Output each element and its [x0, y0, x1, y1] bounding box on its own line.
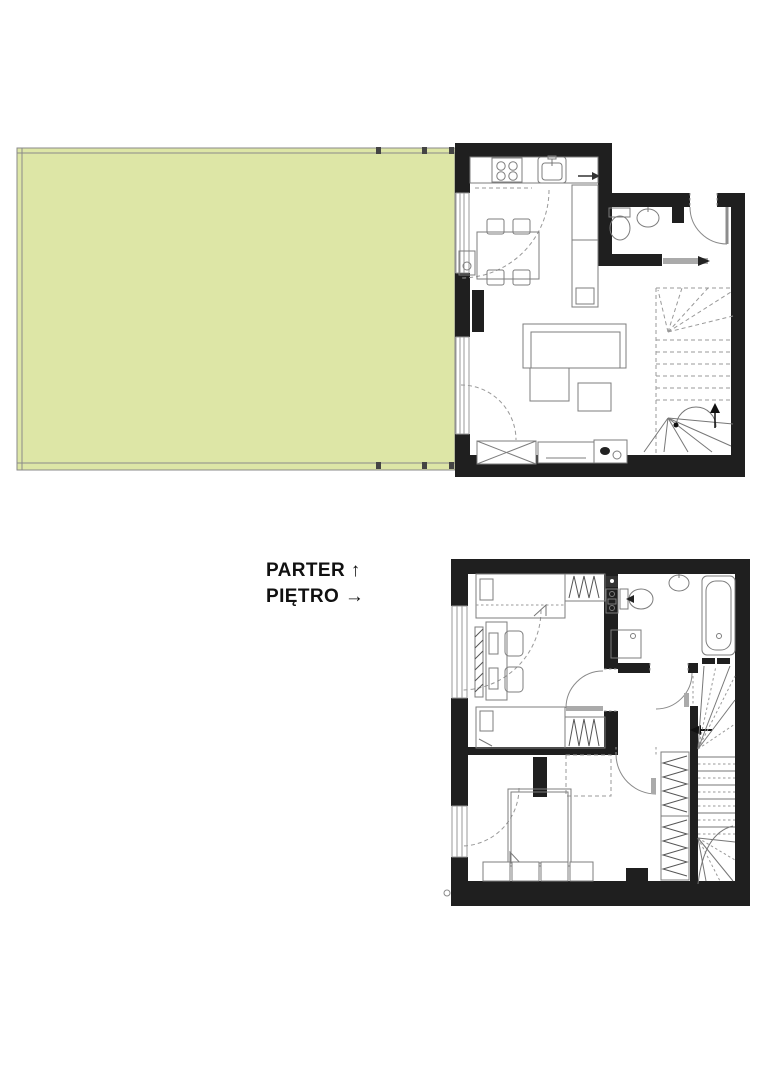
staircase-ground [644, 288, 733, 455]
bathroom-door [650, 663, 692, 709]
living-room-area [472, 290, 627, 464]
right-arrow-icon: → [345, 586, 364, 607]
radiator [472, 290, 484, 332]
radiator [702, 658, 730, 664]
window-kitchen [456, 193, 469, 273]
dining-table [477, 219, 539, 285]
ground-floor-label-text: PARTER [266, 560, 345, 581]
bed-single-1 [476, 574, 565, 618]
coffee-table [578, 383, 611, 411]
washbasin-icon [637, 207, 659, 227]
bathtub-icon [702, 576, 735, 655]
bedside-cabinets [483, 862, 593, 881]
garden-area [17, 147, 455, 470]
radiator [533, 757, 547, 797]
survey-marker [444, 890, 450, 896]
ground-floor-label: PARTER ↑ [266, 558, 364, 584]
chair [487, 270, 504, 285]
sideboard [538, 442, 594, 463]
floorplan-page: PARTER ↑ PIĘTRO → [0, 0, 777, 1080]
ground-floor-plan [17, 143, 745, 477]
master-door [616, 747, 656, 794]
radiator-hatch [475, 627, 483, 697]
winder-bottom [644, 403, 733, 452]
floor-labels: PARTER ↑ PIĘTRO → [266, 558, 364, 610]
chair [513, 270, 530, 285]
ground-floor-walls [455, 143, 745, 477]
upper-floor-label: PIĘTRO → [266, 584, 364, 610]
desk-chair [505, 667, 523, 692]
up-arrow-icon: ↑ [351, 560, 361, 581]
door-swing-kitchen [461, 190, 549, 278]
staircase-upper [698, 666, 735, 884]
tv-cabinet [477, 441, 536, 464]
kids-bedroom [475, 574, 618, 748]
window-master [452, 806, 467, 857]
stairs-up-arrow-icon [710, 403, 720, 428]
kitchen-area [470, 156, 600, 307]
wardrobe-icon [565, 717, 605, 748]
master-bedroom [483, 747, 689, 881]
wardrobe-icon [661, 752, 689, 880]
upper-floor-plan [444, 559, 750, 906]
pillow [480, 579, 493, 600]
bed-single-2 [476, 707, 565, 748]
toilet-icon [620, 589, 653, 609]
media-unit [594, 440, 627, 463]
floorplan-drawing [0, 0, 777, 1080]
window-kids-room [452, 606, 467, 698]
toilet-icon [609, 208, 630, 240]
chimney [626, 868, 648, 882]
planned-wardrobe-outline [566, 755, 611, 796]
desk [486, 622, 523, 700]
window-swing-master [461, 788, 519, 846]
upper-floor-label-text: PIĘTRO [266, 586, 339, 607]
pillow [480, 711, 493, 731]
bathroom [606, 574, 735, 709]
sliding-door [663, 256, 710, 266]
kitchen-counter [470, 157, 598, 183]
desk-chair [505, 631, 523, 656]
kids-room-door [566, 669, 618, 711]
bed-double [508, 789, 571, 866]
wardrobe-icon [565, 574, 605, 601]
washbasin-icon [669, 574, 689, 591]
